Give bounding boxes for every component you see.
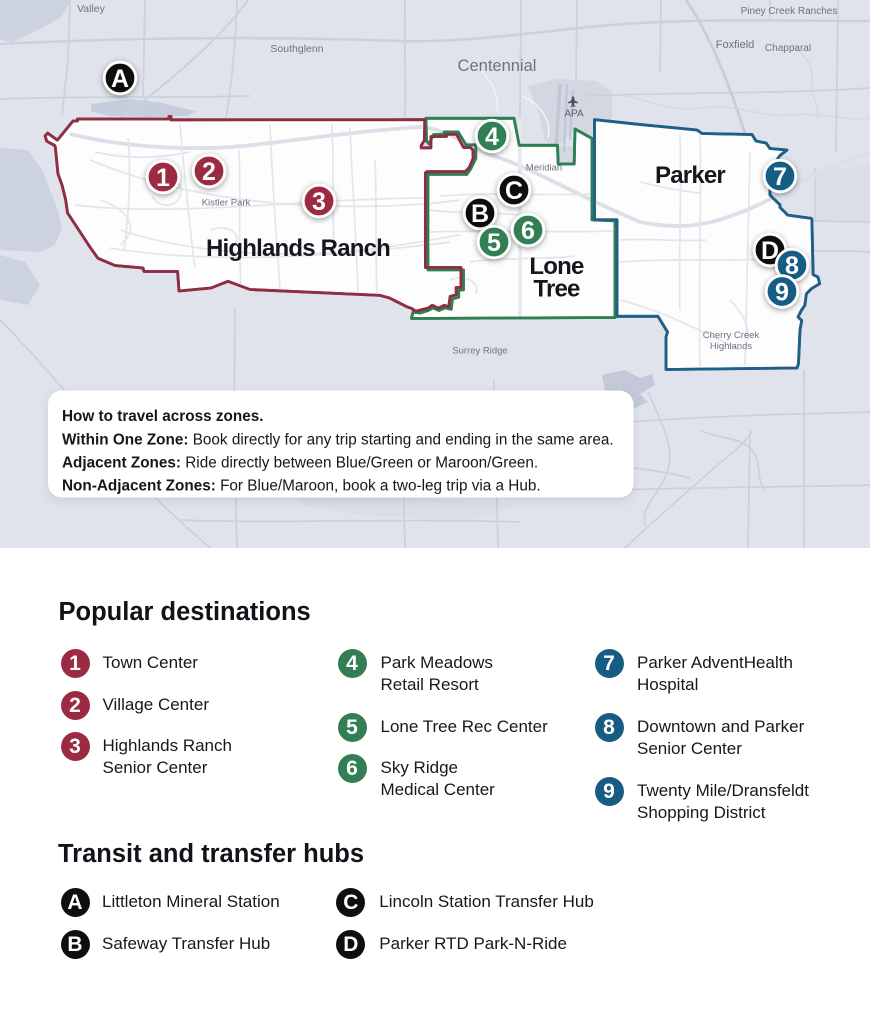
svg-text:Tree: Tree <box>533 276 580 303</box>
svg-text:5: 5 <box>487 229 501 257</box>
svg-text:Valley: Valley <box>77 3 106 15</box>
svg-text:Southglenn: Southglenn <box>270 43 323 55</box>
svg-text:1: 1 <box>156 164 170 192</box>
svg-text:Cherry Creek: Cherry Creek <box>703 330 760 341</box>
svg-text:9: 9 <box>775 279 789 307</box>
svg-text:B: B <box>471 200 489 228</box>
svg-text:C: C <box>505 177 523 205</box>
svg-text:Centennial: Centennial <box>458 57 537 75</box>
svg-text:A: A <box>111 65 129 93</box>
svg-text:7: 7 <box>773 163 787 191</box>
svg-text:Kistler Park: Kistler Park <box>202 198 251 209</box>
svg-text:Meridian: Meridian <box>526 163 562 174</box>
svg-text:2: 2 <box>202 158 216 186</box>
svg-text:4: 4 <box>485 123 499 151</box>
svg-text:Highlands: Highlands <box>710 341 752 352</box>
svg-text:Non-Adjacent Zones: For Blue/M: Non-Adjacent Zones: For Blue/Maroon, boo… <box>62 478 541 495</box>
svg-text:Within One Zone: Book directly: Within One Zone: Book directly for any t… <box>62 432 614 449</box>
svg-text:Piney Creek Ranches: Piney Creek Ranches <box>741 6 838 17</box>
svg-text:3: 3 <box>312 188 326 216</box>
svg-text:How to travel across zones.: How to travel across zones. <box>62 408 263 425</box>
svg-text:Surrey Ridge: Surrey Ridge <box>452 346 507 357</box>
svg-text:Adjacent Zones: Ride directly: Adjacent Zones: Ride directly between Bl… <box>62 455 538 472</box>
svg-text:6: 6 <box>521 217 535 245</box>
svg-text:Chapparal: Chapparal <box>765 43 811 54</box>
svg-text:Highlands Ranch: Highlands Ranch <box>206 235 390 262</box>
svg-text:APA: APA <box>564 109 584 120</box>
svg-text:Parker: Parker <box>655 162 725 189</box>
svg-text:Foxfield: Foxfield <box>716 39 755 51</box>
